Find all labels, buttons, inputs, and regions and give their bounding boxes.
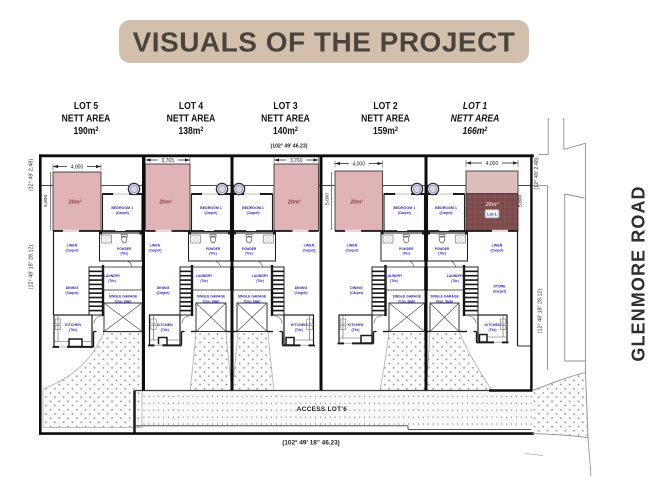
svg-text:(Carpet): (Carpet) [66, 291, 79, 295]
svg-text:LOT 3: LOT 3 [273, 99, 297, 111]
svg-text:3,765: 3,765 [161, 158, 174, 164]
svg-text:SINGLE GARAGE: SINGLE GARAGE [238, 295, 267, 299]
svg-text:LINEN: LINEN [304, 244, 315, 248]
svg-text:(Carpet): (Carpet) [116, 211, 129, 215]
svg-text:4,000: 4,000 [352, 161, 365, 167]
svg-text:4,000: 4,000 [71, 164, 84, 170]
svg-text:(12° 48' 18" 28.12): (12° 48' 18" 28.12) [538, 288, 544, 333]
svg-text:NETT AREA: NETT AREA [451, 112, 500, 124]
svg-text:NETT AREA: NETT AREA [361, 112, 410, 124]
svg-text:Lot 1: Lot 1 [487, 212, 497, 217]
svg-text:(Carpet): (Carpet) [157, 291, 170, 295]
svg-text:KITCHEN: KITCHEN [65, 323, 81, 327]
svg-text:(12° 49' 2.48): (12° 49' 2.48) [29, 159, 35, 191]
svg-text:(Carpet): (Carpet) [303, 249, 316, 253]
svg-text:4,000: 4,000 [486, 161, 499, 167]
svg-text:POWDER: POWDER [242, 247, 257, 251]
svg-text:LOT 5: LOT 5 [74, 99, 98, 111]
svg-text:(Con. Slab): (Con. Slab) [244, 300, 261, 304]
svg-text:KITCHEN: KITCHEN [348, 323, 364, 327]
svg-text:(Tile): (Tile) [200, 279, 208, 283]
svg-text:20m²: 20m² [68, 199, 82, 206]
svg-text:VISUALS OF THE PROJECT: VISUALS OF THE PROJECT [133, 27, 516, 58]
svg-text:159m2: 159m2 [373, 124, 399, 136]
svg-text:(102° 49' 18" 46.23): (102° 49' 18" 46.23) [282, 439, 340, 447]
svg-text:POWDER: POWDER [206, 247, 221, 251]
svg-text:(Carpet): (Carpet) [346, 249, 359, 253]
svg-text:LAUNDRY: LAUNDRY [386, 274, 403, 278]
svg-text:NETT AREA: NETT AREA [261, 112, 310, 124]
svg-text:LAUNDRY: LAUNDRY [252, 274, 269, 278]
svg-text:20m²: 20m² [485, 201, 499, 208]
svg-text:(Carpet): (Carpet) [350, 291, 363, 295]
svg-text:LINEN: LINEN [347, 244, 358, 248]
svg-text:GLENMORE ROAD: GLENMORE ROAD [629, 185, 649, 361]
svg-text:BEDROOM 1: BEDROOM 1 [200, 206, 222, 210]
svg-text:138m2: 138m2 [179, 124, 205, 136]
svg-text:(12° 49' 2.48): (12° 49' 2.48) [534, 157, 540, 189]
svg-text:(Carpet): (Carpet) [295, 291, 308, 295]
svg-text:SINGLE GARAGE: SINGLE GARAGE [197, 295, 226, 299]
svg-text:(Carpet): (Carpet) [398, 211, 411, 215]
svg-text:KITCHEN: KITCHEN [291, 323, 307, 327]
svg-text:(12° 48' 18" 28.12): (12° 48' 18" 28.12) [29, 244, 35, 289]
svg-text:20m²: 20m² [349, 199, 363, 206]
svg-text:(102° 49' 46.23): (102° 49' 46.23) [270, 144, 307, 150]
svg-text:(Tile): (Tile) [69, 328, 77, 332]
svg-text:DINING: DINING [350, 286, 363, 290]
svg-text:5,000: 5,000 [43, 195, 49, 207]
svg-text:(Carpet): (Carpet) [493, 290, 506, 294]
svg-text:POWDER: POWDER [117, 247, 132, 251]
svg-text:(Carpet): (Carpet) [149, 249, 162, 253]
svg-text:KITCHEN: KITCHEN [485, 323, 501, 327]
svg-text:190m2: 190m2 [74, 124, 100, 136]
svg-text:5,000: 5,000 [325, 193, 331, 205]
svg-text:(Con. Slab): (Con. Slab) [203, 300, 220, 304]
svg-text:(Carpet): (Carpet) [491, 249, 504, 253]
svg-text:20m²: 20m² [287, 199, 301, 206]
svg-text:(Tile): (Tile) [351, 328, 359, 332]
svg-text:140m2: 140m2 [273, 124, 299, 136]
svg-text:(Tile): (Tile) [256, 279, 264, 283]
svg-text:5,000: 5,000 [518, 195, 524, 207]
svg-text:DINING: DINING [66, 286, 79, 290]
svg-text:(Tile): (Tile) [161, 328, 169, 332]
svg-text:POWDER: POWDER [399, 247, 414, 251]
svg-text:(Tile): (Tile) [488, 328, 496, 332]
svg-text:SINGLE GARAGE: SINGLE GARAGE [109, 295, 138, 299]
svg-text:3,760: 3,760 [290, 158, 303, 164]
svg-text:NETT AREA: NETT AREA [62, 112, 111, 124]
svg-text:LOT 2: LOT 2 [373, 99, 397, 111]
svg-text:LAUNDRY: LAUNDRY [104, 274, 121, 278]
svg-text:LINEN: LINEN [150, 244, 161, 248]
svg-text:SINGLE GARAGE: SINGLE GARAGE [430, 295, 459, 299]
svg-text:(Tile): (Tile) [390, 279, 398, 283]
svg-text:NETT AREA: NETT AREA [167, 112, 216, 124]
svg-text:BEDROOM 1: BEDROOM 1 [435, 206, 457, 210]
svg-text:(Tile): (Tile) [402, 252, 410, 256]
svg-text:(Con. Slab): (Con. Slab) [115, 300, 132, 304]
svg-text:166m2: 166m2 [463, 124, 489, 136]
svg-text:(Tile): (Tile) [451, 279, 459, 283]
svg-text:(Tile): (Tile) [295, 328, 303, 332]
svg-text:(Con. Slab): (Con. Slab) [436, 300, 453, 304]
svg-text:DINING: DINING [157, 286, 170, 290]
svg-text:20m²: 20m² [158, 199, 172, 206]
svg-text:KITCHEN: KITCHEN [157, 323, 173, 327]
svg-text:LAUNDRY: LAUNDRY [447, 274, 464, 278]
svg-text:(Carpet): (Carpet) [247, 211, 260, 215]
svg-text:(Tile): (Tile) [120, 252, 128, 256]
svg-text:BEDROOM 1: BEDROOM 1 [242, 206, 264, 210]
svg-text:(Tile): (Tile) [108, 279, 116, 283]
svg-text:(Carpet): (Carpet) [205, 211, 218, 215]
svg-text:POWDER: POWDER [435, 247, 450, 251]
svg-text:LINEN: LINEN [67, 244, 78, 248]
svg-text:(Con. Slab): (Con. Slab) [398, 300, 415, 304]
svg-text:LAUNDRY: LAUNDRY [196, 274, 213, 278]
svg-text:LOT 1: LOT 1 [463, 99, 487, 111]
svg-text:(Carpet): (Carpet) [66, 249, 79, 253]
svg-text:BEDROOM 1: BEDROOM 1 [111, 206, 133, 210]
svg-text:LOT 4: LOT 4 [179, 99, 204, 111]
svg-text:STORE: STORE [493, 285, 506, 289]
svg-text:DINING: DINING [295, 286, 308, 290]
svg-text:(Carpet): (Carpet) [440, 211, 453, 215]
svg-text:LINEN: LINEN [492, 244, 503, 248]
svg-text:BEDROOM 1: BEDROOM 1 [393, 206, 415, 210]
svg-text:(Tile): (Tile) [245, 252, 253, 256]
svg-text:ACCESS LOT'6: ACCESS LOT'6 [297, 406, 347, 413]
svg-text:(Tile): (Tile) [438, 252, 446, 256]
svg-text:(Tile): (Tile) [209, 252, 217, 256]
svg-text:SINGLE GARAGE: SINGLE GARAGE [393, 295, 422, 299]
